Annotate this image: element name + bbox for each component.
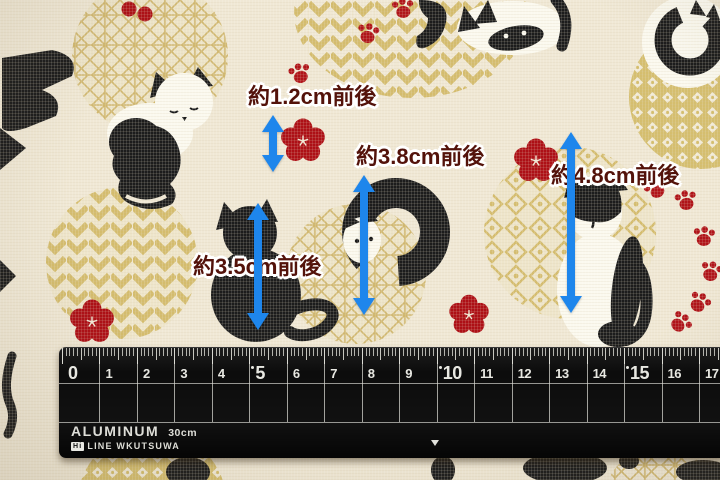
measurement-arrow bbox=[246, 203, 270, 330]
measurement-arrow bbox=[559, 132, 583, 313]
measurement-annotations: 約1.2cm前後約3.8cm前後約4.8cm前後約3.5cm前後 bbox=[0, 0, 720, 480]
measurement-label: 約1.2cm前後 bbox=[248, 84, 376, 110]
measurement-arrow bbox=[261, 115, 285, 172]
measurement-label: 約3.8cm前後 bbox=[356, 144, 484, 170]
fabric-photo: 01234567891011121314151617 ALUMINUM30cm … bbox=[0, 0, 720, 480]
measurement-arrow bbox=[352, 175, 376, 315]
